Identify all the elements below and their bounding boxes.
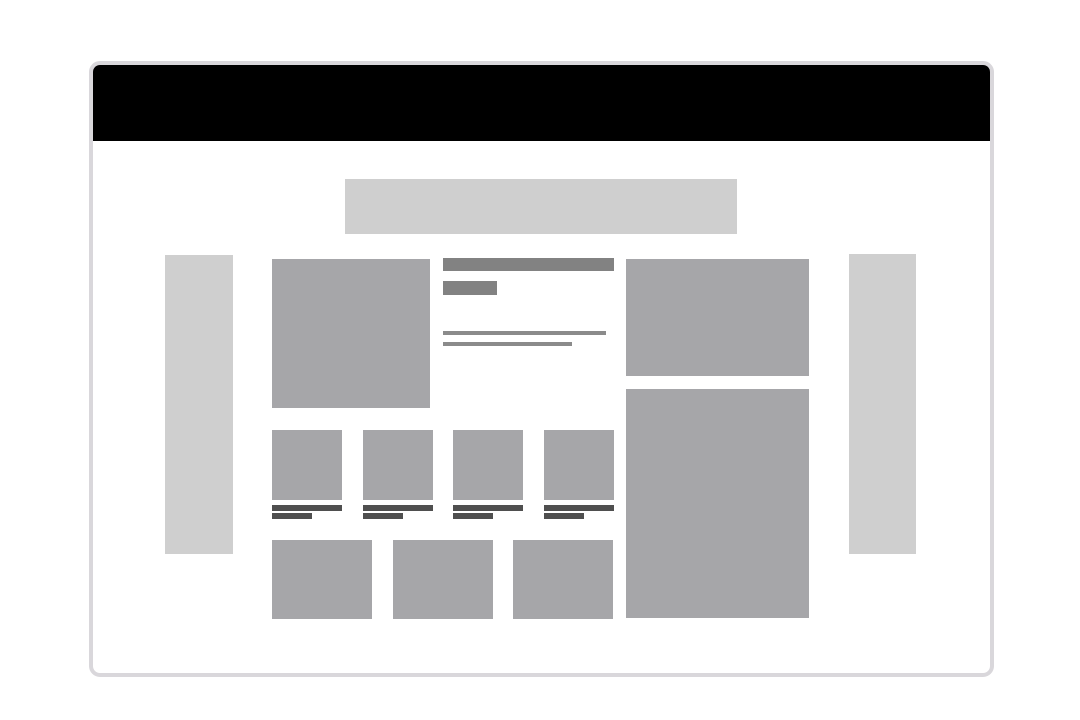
thumbnail-image-placeholder: [453, 430, 523, 500]
thumbnail-caption-line-2: [363, 513, 403, 519]
hero-image-placeholder: [272, 259, 430, 408]
body-text-line-1: [443, 331, 606, 335]
body-text-line-2: [443, 342, 572, 346]
page-body: { "canvas": { "background": "#ffffff" },…: [0, 0, 1080, 720]
thumbnail-caption-line-1: [272, 505, 342, 511]
bottom-image-placeholder: [272, 540, 372, 619]
thumbnail-caption-line-1: [453, 505, 523, 511]
thumbnail-caption-line-2: [544, 513, 584, 519]
wireframe-canvas: [0, 0, 1080, 720]
bottom-image-placeholder: [513, 540, 613, 619]
thumbnail-image-placeholder: [272, 430, 342, 500]
left-sidebar-placeholder: [165, 255, 233, 554]
thumbnail-row: [272, 430, 614, 519]
right-column-block-bottom: [626, 389, 809, 618]
button-placeholder[interactable]: [443, 281, 497, 295]
thumbnail-card[interactable]: [453, 430, 523, 519]
right-column-block-top: [626, 259, 809, 376]
thumbnail-caption-line-1: [363, 505, 433, 511]
thumbnail-card[interactable]: [272, 430, 342, 519]
thumbnail-image-placeholder: [544, 430, 614, 500]
right-sidebar-placeholder: [849, 254, 916, 554]
thumbnail-card[interactable]: [363, 430, 433, 519]
thumbnail-caption-line-1: [544, 505, 614, 511]
thumbnail-card[interactable]: [544, 430, 614, 519]
window-header-bar: [93, 65, 990, 141]
thumbnail-caption-line-2: [272, 513, 312, 519]
headline-bar-placeholder: [443, 258, 614, 271]
thumbnail-image-placeholder: [363, 430, 433, 500]
browser-window: [89, 61, 994, 677]
banner-placeholder: [345, 179, 737, 234]
bottom-image-placeholder: [393, 540, 493, 619]
thumbnail-caption-line-2: [453, 513, 493, 519]
bottom-block-row: [272, 540, 613, 619]
